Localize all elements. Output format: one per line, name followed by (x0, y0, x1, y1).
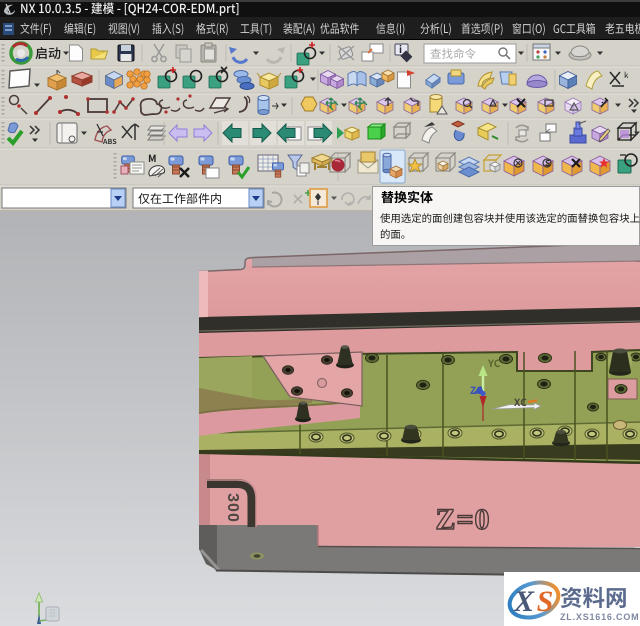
svg-text:300: 300 (224, 493, 241, 523)
svg-text:X: X (513, 585, 535, 618)
svg-text:ZL.XS1616.COM: ZL.XS1616.COM (560, 612, 639, 622)
svg-text:S: S (537, 585, 554, 618)
svg-text:Z=0: Z=0 (435, 503, 490, 536)
